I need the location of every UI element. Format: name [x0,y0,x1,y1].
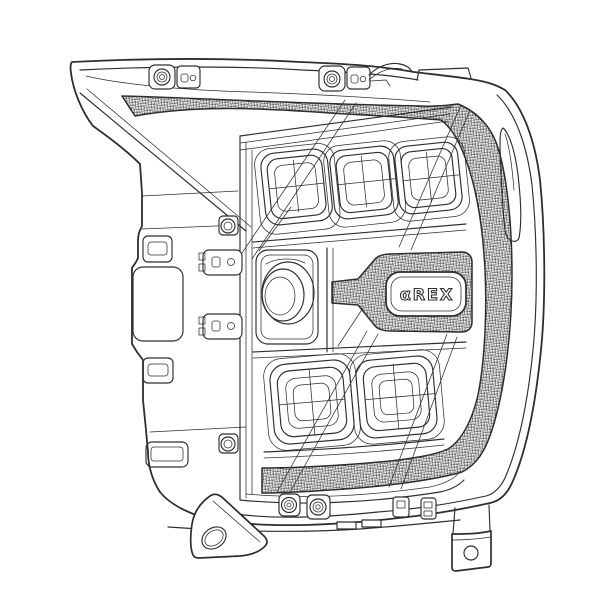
left-mounting-foot [191,494,267,558]
low-beam-projector-2 [348,348,446,446]
side-clip-upper [199,250,242,275]
alpharex-logo-text: αREX [400,285,455,304]
retainer-clip-top-left [177,66,200,88]
side-screw-lower [219,434,238,453]
left-bracket-tabs [133,236,188,467]
alpharex-badge: αREX [332,252,472,332]
high-beam-projector-2 [322,139,407,229]
bottom-adjuster-1 [279,494,300,516]
bottom-adjuster-2 [307,495,330,519]
bottom-clip-1 [393,497,409,517]
adjuster-screw-top-center [319,66,345,91]
bottom-clip-2 [421,498,436,519]
side-screw-upper [219,216,238,235]
right-mounting-bracket [452,505,491,571]
adjuster-screw-top-left [149,65,175,89]
side-clip-lower [199,314,242,339]
turn-signal-projector [256,250,318,344]
headlight-line-art: αREX [0,0,600,600]
retainer-clip-top-center [347,63,412,89]
high-beam-projector-1 [253,142,342,236]
lower-shelf-lines [264,439,444,458]
high-beam-projector-3 [387,135,471,223]
headlight-illustration: αREX [0,0,600,600]
